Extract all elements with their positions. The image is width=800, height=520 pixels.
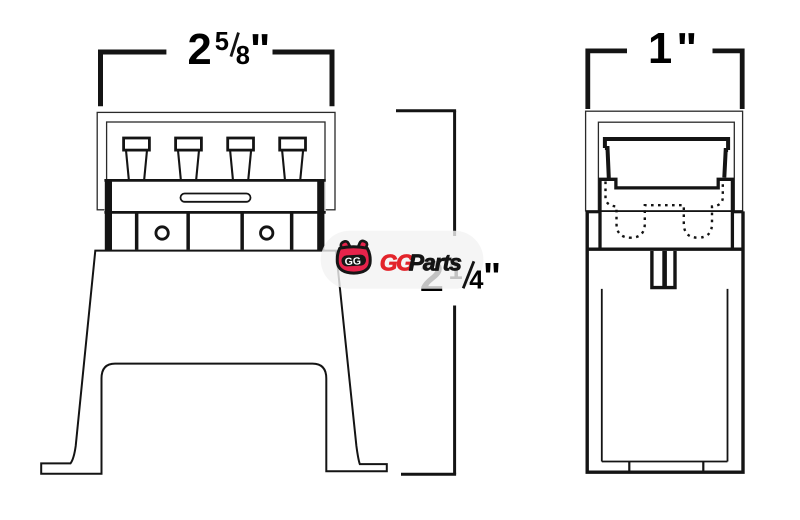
svg-text:Parts: Parts	[409, 250, 461, 276]
svg-text:1: 1	[648, 25, 672, 73]
svg-text:5: 5	[215, 28, 229, 56]
svg-text:GG: GG	[344, 255, 361, 268]
svg-text:8: 8	[236, 42, 250, 70]
svg-text:": "	[250, 26, 271, 74]
svg-text:2: 2	[188, 26, 212, 74]
svg-text:": "	[677, 25, 698, 73]
svg-text:": "	[483, 256, 501, 298]
